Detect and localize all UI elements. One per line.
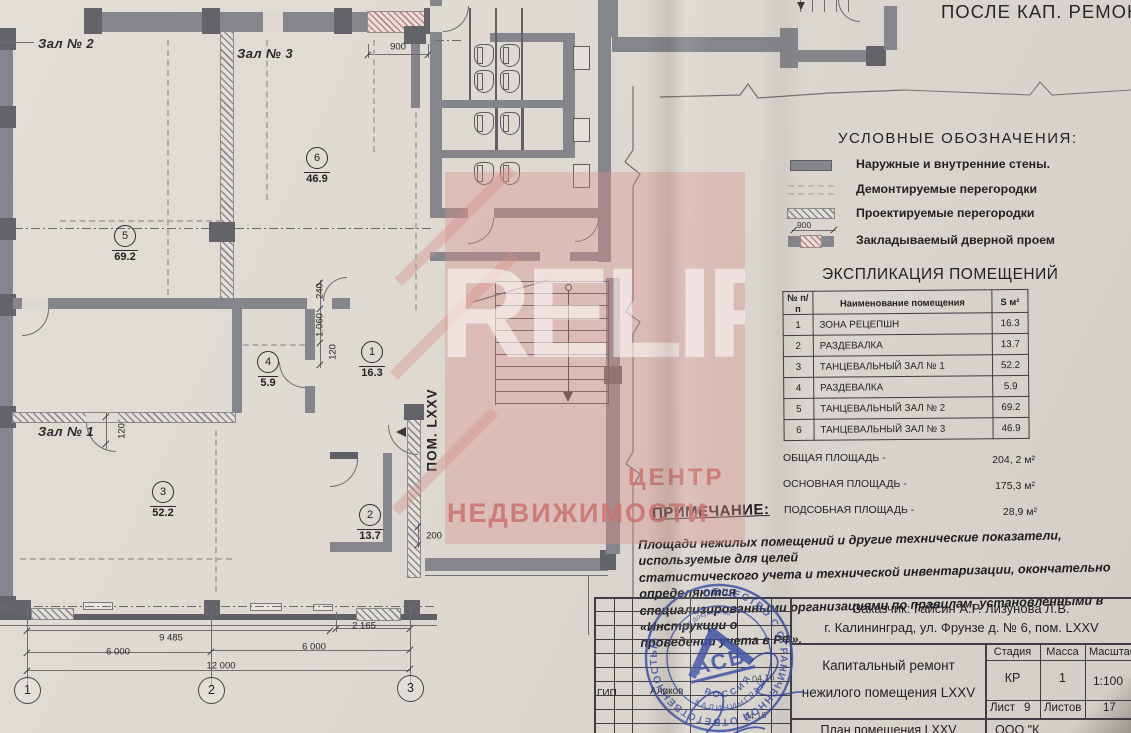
- wall-segment: [0, 218, 16, 240]
- dimension-label: 6 000: [302, 642, 326, 653]
- stair-tread: [496, 342, 608, 343]
- room-lxxv-label: ПОМ. LXXV: [425, 388, 440, 471]
- wall-segment: [812, 0, 813, 12]
- wall-segment: [798, 50, 868, 62]
- room-number: 1: [361, 341, 383, 363]
- sink-icon: [573, 164, 590, 188]
- door-swing-arc: [468, 218, 494, 244]
- wall-segment: [442, 150, 565, 158]
- wall-segment: [442, 100, 565, 108]
- titleblock-line: [985, 700, 1131, 701]
- dimension-label: 120: [328, 344, 339, 360]
- sink-icon: [573, 46, 590, 70]
- wall-segment: [425, 575, 608, 576]
- wall-segment: [357, 609, 400, 620]
- dimension-label: 200: [426, 531, 442, 542]
- titleblock-line: [614, 597, 615, 733]
- staircase: [495, 281, 609, 405]
- wall-segment: [866, 46, 886, 66]
- entry-door-arrow: [396, 427, 406, 437]
- sheets-label: Листов: [1044, 702, 1081, 714]
- stair-tread: [496, 318, 608, 319]
- wall-segment: [0, 106, 16, 128]
- sheets-number: 17: [1103, 702, 1116, 714]
- toilet-icon: [474, 112, 494, 135]
- room-area: 13.7: [357, 529, 382, 542]
- room-area: 16.3: [359, 366, 384, 379]
- door-swing-arc: [323, 277, 347, 301]
- floor-plan-photo: Зал № 2Зал № 3Зал № 1569.2646.945.9116.3…: [0, 0, 1131, 733]
- stair-tread: [496, 354, 608, 355]
- wall-segment: [0, 606, 437, 607]
- room-marker: 116.3: [356, 341, 388, 381]
- wall-segment: [430, 208, 610, 218]
- toilet-icon: [474, 44, 494, 67]
- wall-segment: [84, 8, 102, 34]
- customer-line1: Заказчик: Гайсин А.Р. Лизунова Л.В.: [792, 601, 1131, 616]
- wall-segment: [263, 12, 283, 32]
- stair-down-arrow: [563, 392, 573, 402]
- dimension-label: 120: [117, 423, 128, 439]
- organization-name: ООО "К: [995, 723, 1039, 733]
- wall-segment: [824, 0, 825, 12]
- toilet-icon: [500, 112, 520, 135]
- stair-arrow-start: [565, 284, 572, 291]
- wall-segment: [490, 33, 565, 42]
- stair-tread: [496, 330, 608, 331]
- wall-segment: [540, 252, 570, 261]
- wall-segment: [250, 603, 282, 611]
- toilet-icon: [474, 70, 494, 93]
- sheet-number: 9: [1024, 702, 1030, 714]
- room-marker: 352.2: [147, 481, 179, 521]
- wall-segment: [20, 558, 232, 561]
- axis-bubble: 1: [14, 677, 41, 704]
- wall-segment: [612, 37, 782, 52]
- door-swing-arc: [22, 309, 49, 336]
- stair-tread: [496, 391, 608, 392]
- room-marker: 45.9: [252, 351, 284, 391]
- wall-segment: [430, 6, 442, 32]
- wall-segment: [209, 222, 235, 242]
- stage-header: Стадия: [985, 646, 1040, 658]
- dimension-label: 6 000: [106, 647, 130, 658]
- stair-arrow-line: [568, 290, 569, 392]
- stair-tread: [496, 366, 608, 367]
- axis-bubble: 2: [198, 677, 225, 704]
- wall-segment: [495, 8, 497, 100]
- wall-segment: [204, 600, 220, 616]
- room-label: Зал № 3: [237, 46, 293, 61]
- wall-segment: [404, 600, 420, 614]
- room-area: 69.2: [112, 250, 137, 263]
- stair-tread: [496, 281, 608, 282]
- scale-header: Масштаб: [1089, 646, 1131, 658]
- dimension-label: 900: [390, 42, 406, 53]
- titleblock-line: [790, 643, 1131, 645]
- wall-segment: [202, 8, 220, 34]
- wall-segment: [836, 0, 837, 12]
- wall-segment: [243, 344, 305, 347]
- room-number: 4: [257, 351, 279, 373]
- room-label: Зал № 1: [38, 424, 94, 439]
- room-marker: 646.9: [301, 147, 333, 187]
- wall-segment: [32, 609, 73, 619]
- wall-segment: [13, 298, 307, 309]
- room-label: Зал № 2: [38, 36, 94, 51]
- titleblock-line: [985, 643, 987, 733]
- door-swing-arc: [443, 6, 469, 32]
- wall-segment: [884, 6, 897, 50]
- wall-segment: [16, 600, 31, 616]
- wall-segment: [305, 386, 315, 413]
- stair-tread: [496, 305, 608, 306]
- dimension-label: 2 165: [352, 621, 376, 632]
- upper-stair-arrow: [797, 2, 805, 10]
- wall-segment: [232, 309, 242, 413]
- wall-segment: [430, 252, 608, 261]
- wall-segment: [305, 309, 315, 360]
- door-swing-arc: [330, 459, 358, 487]
- wall-segment: [435, 40, 463, 41]
- wall-segment: [428, 44, 429, 58]
- wall-segment: [468, 208, 494, 218]
- wall-segment: [780, 28, 798, 68]
- dimension-label: 12 000: [206, 661, 235, 672]
- door-swing-arc: [575, 218, 599, 242]
- titleblock-line: [594, 597, 596, 733]
- room-marker: 213.7: [354, 504, 386, 544]
- wall-segment: [60, 220, 222, 223]
- toilet-icon: [500, 162, 520, 185]
- wall-segment: [425, 558, 608, 571]
- wall-segment: [368, 54, 428, 55]
- toilet-icon: [500, 44, 520, 67]
- dimension-label: 1.060: [315, 313, 326, 337]
- stage-value: КР: [985, 671, 1040, 685]
- wall-segment: [266, 40, 269, 200]
- axis-bubble: 3: [397, 675, 424, 702]
- wall-segment: [215, 430, 218, 592]
- room-area: 46.9: [304, 172, 329, 185]
- wall-segment: [368, 44, 369, 58]
- room-marker: 569.2: [109, 225, 141, 265]
- wall-segment: [373, 40, 376, 152]
- wall-segment: [415, 112, 418, 310]
- stair-tread: [496, 403, 608, 404]
- titleblock-line: [1085, 643, 1086, 718]
- wall-segment: [22, 298, 48, 309]
- mass-value: 1: [1040, 671, 1085, 685]
- sheet-label: Лист: [990, 702, 1015, 714]
- wall-segment: [495, 108, 498, 150]
- dimension-label: 9 485: [159, 633, 183, 644]
- wall-segment: [334, 8, 352, 34]
- wall-segment: [469, 8, 471, 100]
- wall-segment: [221, 32, 233, 298]
- titleblock-line: [790, 718, 1131, 720]
- wall-segment: [27, 630, 330, 631]
- wall-segment: [27, 606, 28, 686]
- room-number: 5: [114, 225, 136, 247]
- stair-tread: [496, 379, 608, 380]
- titleblock-line: [1040, 643, 1041, 718]
- wall-segment: [14, 228, 434, 229]
- wall-segment: [605, 0, 618, 37]
- wall-segment: [0, 28, 16, 50]
- scale-value: 1:100: [1085, 674, 1131, 688]
- sink-icon: [573, 118, 590, 142]
- handwritten-signatures: [655, 625, 825, 733]
- room-area: 52.2: [150, 506, 175, 519]
- room-area: 5.9: [258, 376, 277, 389]
- wall-segment: [404, 404, 424, 420]
- mass-header: Масса: [1040, 646, 1085, 658]
- wall-segment: [588, 575, 589, 635]
- room-number: 2: [359, 504, 381, 526]
- stair-tread: [496, 293, 608, 294]
- room-number: 3: [152, 481, 174, 503]
- wall-segment: [410, 602, 411, 684]
- titleblock-line: [985, 660, 1131, 661]
- toilet-icon: [500, 70, 520, 93]
- wall-segment: [598, 0, 611, 262]
- wall-segment: [521, 8, 523, 100]
- wall-segment: [606, 414, 620, 554]
- wall-segment: [330, 452, 358, 459]
- wall-segment: [0, 42, 34, 43]
- wall-segment: [167, 40, 170, 295]
- wall-segment: [404, 26, 426, 44]
- dimension-label: 240: [315, 283, 326, 299]
- room-number: 6: [306, 147, 328, 169]
- customer-line2: г. Калининград, ул. Фрунзе д. № 6, пом. …: [792, 620, 1131, 635]
- wall-segment: [86, 413, 118, 422]
- toilet-icon: [474, 162, 494, 185]
- wall-segment: [521, 108, 524, 150]
- wall-segment: [13, 413, 235, 422]
